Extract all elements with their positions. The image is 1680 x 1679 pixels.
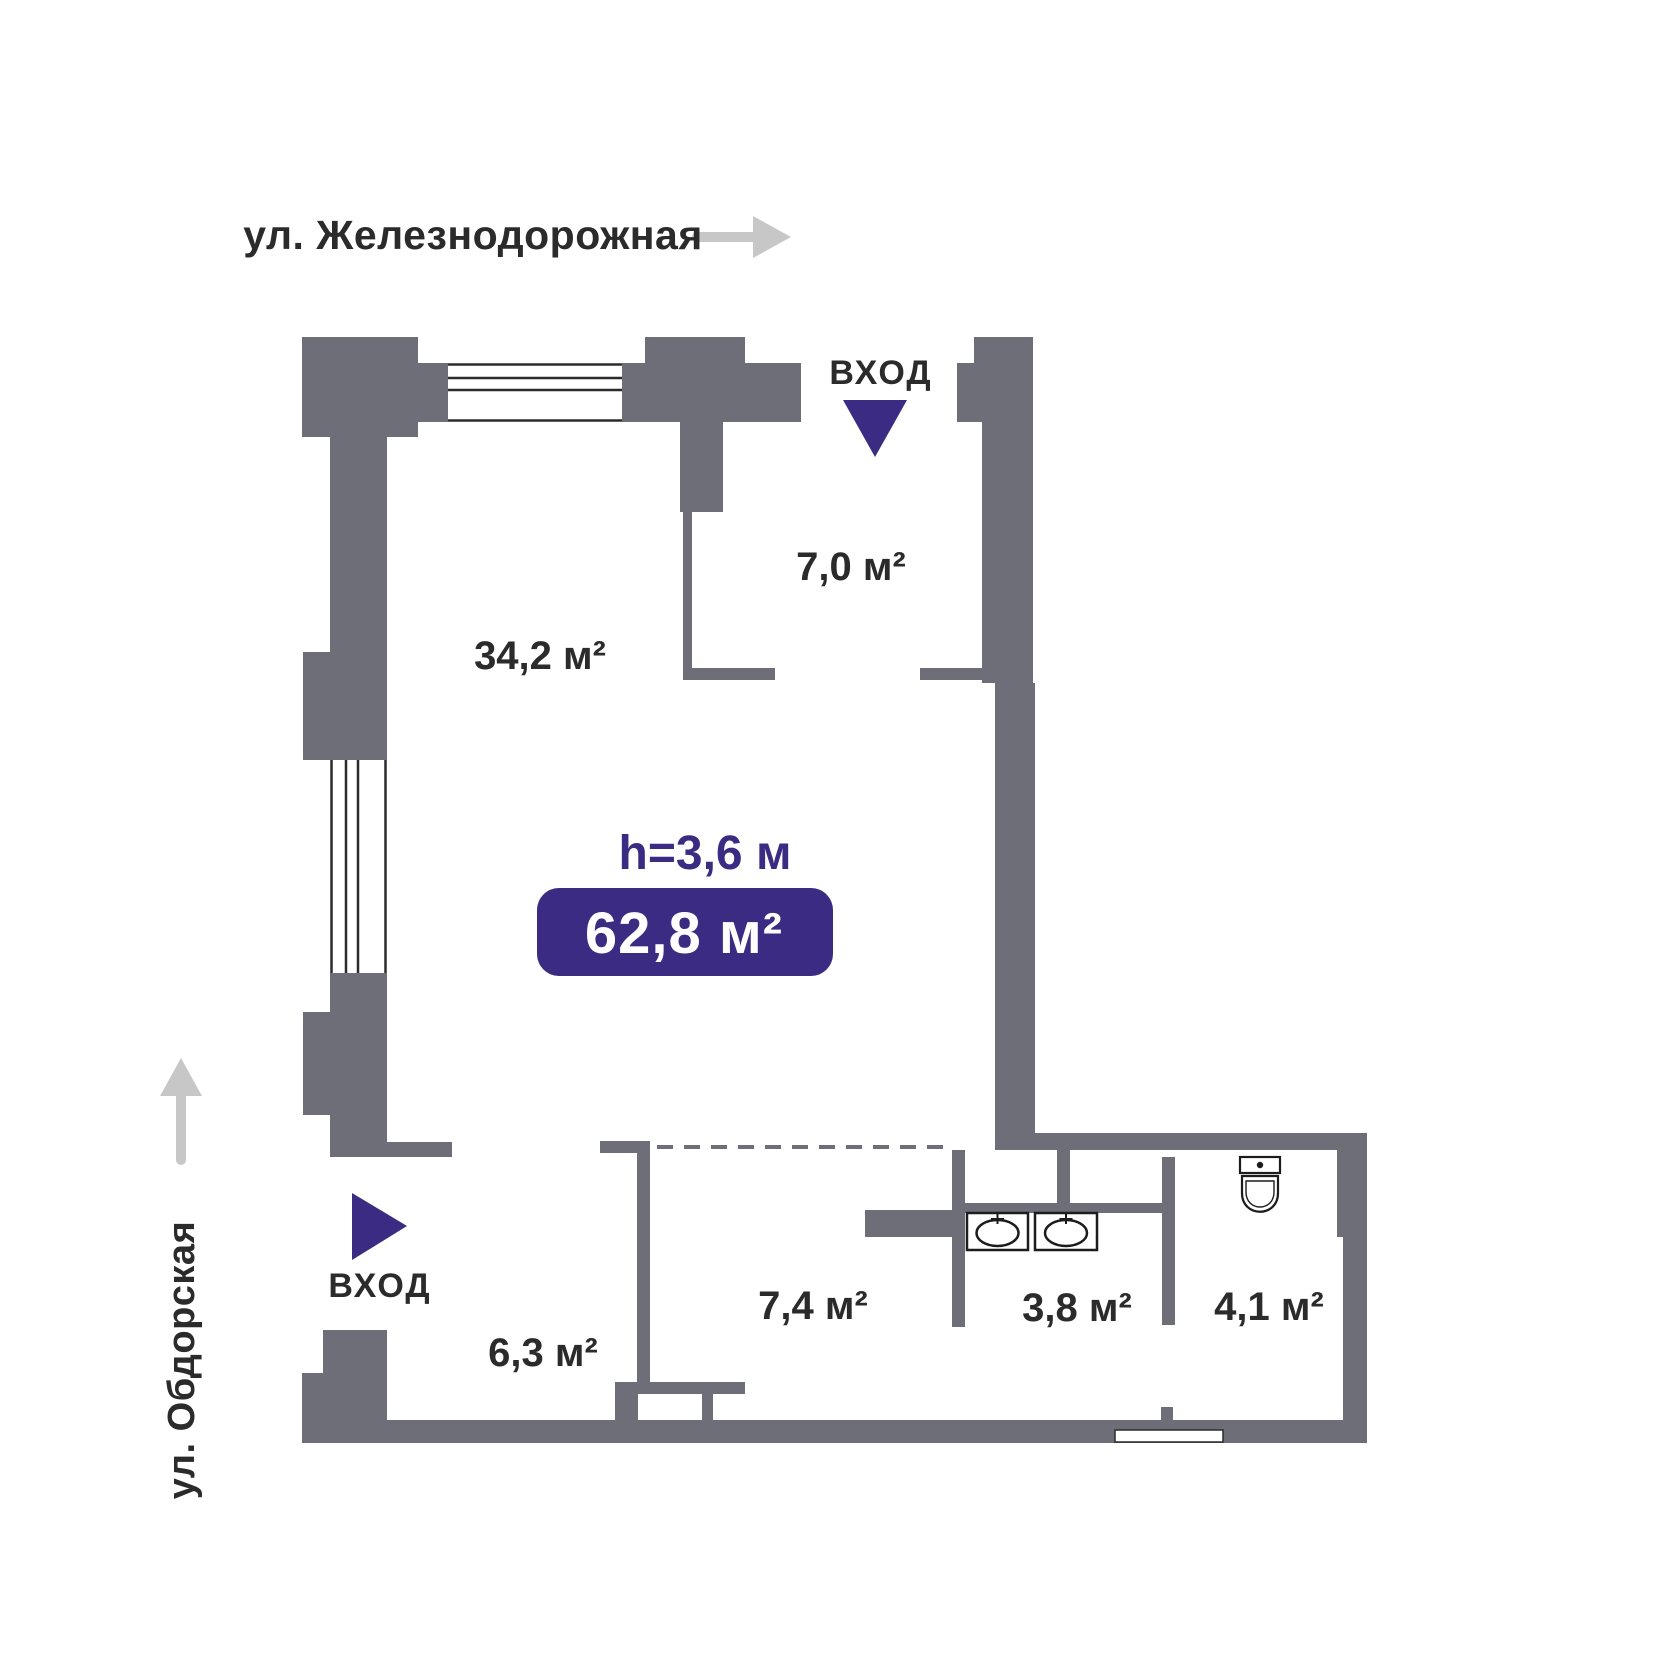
room-area-main: 34,2 м²: [474, 634, 606, 678]
room-area-corridor: 7,4 м²: [758, 1284, 868, 1328]
entrance-label-top: ВХОД: [829, 354, 932, 392]
window-bottom: [1115, 1430, 1223, 1442]
street-name-left: ул. Обдорская: [161, 1221, 203, 1499]
street-name-top: ул. Железнодорожная: [243, 212, 703, 258]
floorplan-canvas: ул. Железнодорожная ул. Обдорская ВХОД В…: [0, 0, 1680, 1679]
total-area-value: 62,8 м²: [585, 901, 783, 966]
ceiling-height-label: h=3,6 м: [619, 827, 792, 880]
room-area-wc: 4,1 м²: [1214, 1285, 1324, 1329]
sink-icon: [967, 1213, 1028, 1250]
floorplan-page: ул. Железнодорожная ул. Обдорская ВХОД В…: [0, 0, 1680, 1679]
window-top: [448, 363, 622, 422]
room-area-washroom: 3,8 м²: [1022, 1286, 1132, 1330]
street-arrow-up-icon: [160, 1058, 202, 1160]
room-area-vestibule: 7,0 м²: [796, 545, 906, 589]
entrance-label-left: ВХОД: [328, 1267, 431, 1305]
toilet-icon: [1240, 1157, 1280, 1212]
entrance-arrow-right-icon: [352, 1193, 407, 1260]
street-arrow-right-icon: [697, 216, 791, 258]
sink-icon: [1035, 1213, 1097, 1250]
walls: [302, 337, 1367, 1443]
entrance-arrow-down-icon: [843, 400, 907, 457]
room-area-hall: 6,3 м²: [488, 1331, 598, 1375]
total-area-badge: 62,8 м²: [537, 888, 833, 976]
window-left: [330, 760, 387, 973]
